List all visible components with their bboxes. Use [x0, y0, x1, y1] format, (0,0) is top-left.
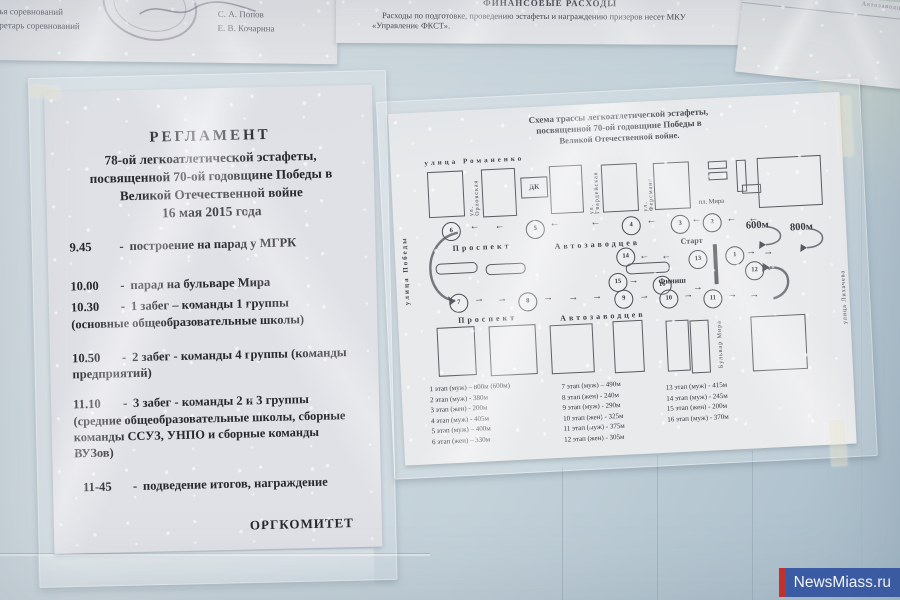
finish-label: Финиш: [658, 276, 686, 286]
road-label-prospekt-top: Проспект: [452, 241, 511, 253]
median-island: [435, 262, 477, 275]
stage-circle-5: 5: [525, 219, 545, 239]
building-block: [708, 171, 727, 180]
street-pobedy: улица Победы: [400, 229, 412, 305]
building-block: [488, 324, 537, 376]
stage-circle-7: 7: [449, 293, 469, 313]
schedule-text: парад на бульваре Мира: [130, 275, 270, 292]
stage-circle-3: 3: [670, 214, 690, 234]
street-orlovskaya: ул. Орловская: [467, 172, 481, 217]
wall-seam: [752, 450, 753, 600]
route-arrow: ←: [494, 221, 504, 231]
officials-roles: Главный судья соревнований Главный секре…: [0, 4, 80, 34]
building-block: [601, 163, 639, 213]
building-block: [612, 320, 645, 373]
officials-names: С. А. Попов Е. В. Кочарина: [217, 7, 274, 36]
street-romanenko: улица Романенко: [424, 154, 524, 167]
stage-circle-8: 8: [518, 292, 538, 312]
route-arrow: →: [639, 291, 649, 301]
schedule-time: 10.50: [72, 349, 116, 366]
newsmiass-watermark: NewsMiass.ru: [779, 568, 900, 597]
route-arrow: ←: [549, 219, 559, 229]
route-arrow: ←: [691, 215, 701, 225]
route-arrow: →: [727, 290, 737, 300]
route-schema-document: Схема трассы легкоатлетической эстафеты,…: [388, 92, 857, 466]
finance-line-2: «Управление ФКСТ».: [372, 20, 764, 32]
building-block: [437, 326, 477, 377]
building-block: [481, 168, 517, 218]
scrap-faint-text: Автозаводцев: [861, 1, 900, 12]
route-arrow: ←: [766, 263, 776, 273]
chief-judge-role: Главный судья соревнований: [0, 4, 80, 20]
building-block: [757, 155, 823, 208]
reglament-title: РЕГЛАМЕНТ: [67, 125, 353, 148]
route-arrow: ←: [469, 222, 479, 232]
route-arrow: →: [693, 283, 703, 293]
stage-circle-11: 11: [703, 289, 723, 309]
sleeve-bottom-edge: [38, 548, 375, 591]
schedule-time: 10.30: [71, 299, 115, 316]
stage-circle-1: 1: [725, 246, 745, 266]
route-arrow: →: [746, 247, 756, 257]
finance-title: ФИНАНСОВЫЕ РАСХОДЫ: [336, 0, 764, 9]
route-arrow: ←: [726, 214, 736, 224]
start-label: Старт: [680, 236, 702, 246]
orgcommittee-signoff: ОРГКОМИТЕТ: [76, 516, 354, 538]
finance-note-paper: ФИНАНСОВЫЕ РАСХОДЫ Расходы по подготовке…: [336, 0, 764, 45]
stage-circle-6: 6: [441, 222, 461, 242]
stage-circle-9: 9: [614, 289, 634, 309]
building-block: [427, 170, 465, 218]
route-arrow: →: [749, 290, 759, 300]
route-arrow: →: [628, 276, 638, 286]
schedule-time: 11-45: [83, 478, 127, 495]
schedule-row: 11-45-подведение итогов, награждение: [75, 473, 361, 496]
stage-circle-12: 12: [745, 261, 765, 281]
photo-of-notice-board: Главный судья соревнований Главный секре…: [0, 0, 900, 600]
route-arrow: ←: [639, 251, 649, 261]
chief-secretary-role: Главный секретарь соревнований: [0, 18, 80, 34]
legend-column-1: 1 этап (муж) – 800м (600м) 2 этап (муж) …: [429, 380, 513, 447]
tape-strip: [828, 419, 847, 466]
scrap-paper: Автозаводцев: [735, 0, 900, 90]
stage-circle-10: 10: [659, 289, 679, 309]
legend-column-3: 13 этап (муж) - 415м 14 этап (муж) - 245…: [665, 380, 728, 425]
route-arrow: →: [592, 292, 602, 302]
schedule-time: 9.45: [69, 239, 113, 256]
schedule-text: 1 забег – команды 1 группы: [131, 296, 289, 314]
officials-note-paper: Главный судья соревнований Главный секре…: [0, 0, 338, 64]
watermark-label: NewsMiass.ru: [786, 568, 900, 597]
building-dk: ДК: [520, 176, 548, 198]
legend-column-2: 7 этап (муж) – 490м 8 этап (жен) - 240м …: [561, 379, 625, 445]
building-block: [549, 165, 584, 215]
schedule-note: (средние общеобразовательные школы, сбор…: [73, 407, 360, 462]
wall-seam: [657, 455, 658, 600]
distance-800m: 800м: [790, 221, 813, 233]
building-block: [665, 320, 690, 372]
road-label-prospekt-bottom: Проспект: [458, 313, 517, 325]
building-block: [550, 323, 595, 374]
route-arrow: →: [763, 247, 773, 257]
schedule-row: 10.50-2 забег - команды 4 группы (команд…: [72, 344, 359, 383]
schedule-time: 11.10: [73, 396, 117, 413]
route-arrow: →: [568, 293, 578, 303]
legend-line: 12 этап (жен) - 305м: [564, 431, 626, 444]
schedule-row: 10.00-парад на бульваре Мира: [70, 272, 356, 295]
route-arrow: →: [683, 290, 693, 300]
reglament-document: РЕГЛАМЕНТ 78-ой легкоатлетической эстафе…: [44, 85, 382, 554]
street-likhacheva: улица Лихачева: [839, 240, 849, 324]
stage-circle-2: 2: [702, 213, 722, 233]
route-arrow: →: [543, 293, 553, 303]
route-arrow: →: [474, 295, 484, 305]
stage-circle-4: 4: [621, 216, 641, 236]
schedule-row: 9.45-построение на парад у МГРК: [69, 233, 355, 256]
chief-judge-name: С. А. Попов: [218, 7, 275, 22]
street-bulvar-mira: Бульвар Мира: [716, 320, 724, 368]
round-stamp: [95, 0, 206, 51]
chief-secretary-name: Е. В. Кочарина: [217, 21, 274, 36]
building-block: [689, 320, 711, 374]
stage-circle-13: 13: [688, 250, 708, 270]
schedule-text: построение на парад у МГРК: [129, 236, 296, 254]
wall-seam: [562, 468, 563, 600]
legend-line: 16 этап (муж) - 370м: [667, 411, 729, 424]
building-block: [750, 314, 808, 372]
watermark-red-bar: [779, 568, 786, 597]
distance-600m: 600м: [746, 220, 769, 232]
start-finish-line: [713, 244, 718, 284]
schedule-time: 10.00: [70, 277, 114, 294]
route-arrow: ←: [590, 218, 600, 228]
building-block: [708, 161, 727, 170]
schedule-text: подведение итогов, награждение: [143, 475, 328, 493]
median-island: [485, 262, 525, 275]
building-block: [653, 161, 691, 210]
square-mira-label: пл. Мира: [699, 198, 725, 206]
route-arrow: →: [497, 294, 507, 304]
route-arrow: ←: [661, 251, 671, 261]
street-gvardeyskaya: ул. Гвардейская: [587, 168, 601, 215]
route-arrow: ←: [646, 216, 656, 226]
